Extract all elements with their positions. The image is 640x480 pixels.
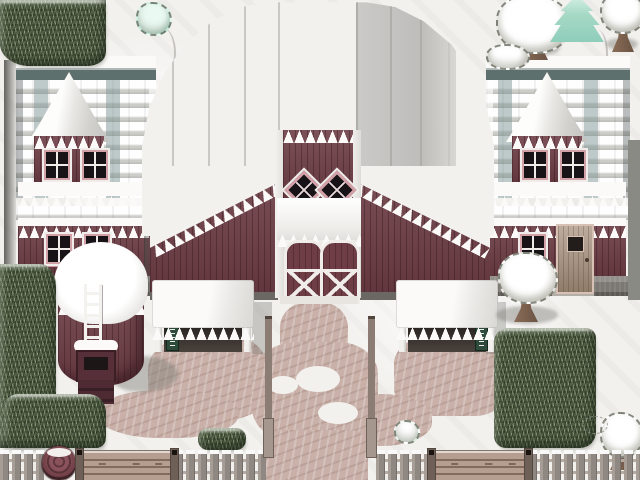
picket-fence (376, 450, 430, 480)
left-edge-shade (4, 60, 16, 272)
gate-post (427, 448, 436, 480)
barn-door-left[interactable] (284, 240, 324, 304)
snow-awning (277, 198, 361, 240)
snow-sprig (582, 416, 608, 434)
icicle-fringe (152, 327, 254, 340)
door-window (567, 236, 584, 252)
left-dormer-window (44, 150, 70, 180)
left-dormer-window (82, 150, 108, 180)
gate-planks (80, 454, 174, 478)
hedge-bottom-left (4, 394, 106, 448)
hinge-bracket (429, 450, 434, 455)
dirt-path-bottom (264, 430, 368, 480)
door-knob (585, 258, 589, 262)
stall-roof-right (396, 280, 498, 328)
barrel-snow (47, 448, 71, 457)
gate-right[interactable] (428, 450, 532, 480)
stall-roof-left (152, 280, 254, 328)
left-wing-snow-ledge (18, 182, 152, 196)
roof-edge-shade (16, 80, 23, 198)
game-viewport (0, 0, 640, 480)
gatepost-right (366, 316, 377, 458)
post-board (263, 418, 274, 458)
gate-post (170, 448, 179, 480)
hinge-bracket (172, 450, 177, 455)
barn-door-right[interactable] (320, 240, 360, 304)
barn-wall-left (150, 166, 278, 296)
picket-fence (528, 450, 640, 480)
right-wing-snow-ledge (488, 182, 626, 196)
icicle-fringe (512, 136, 582, 149)
snow-patch (296, 366, 340, 392)
icicle-fringe (34, 136, 104, 149)
picket-fence (174, 450, 266, 480)
gate-post (75, 448, 84, 480)
hinge-bracket (526, 450, 531, 455)
snow-sprout (394, 420, 420, 444)
left-wing-ridge (16, 68, 156, 80)
barrel[interactable] (42, 446, 76, 480)
hinge-bracket (77, 450, 82, 455)
bush-small (198, 428, 246, 450)
side-door[interactable] (556, 224, 594, 294)
snow-patch (318, 402, 358, 424)
right-dormer-window (560, 150, 586, 180)
right-edge-shade (628, 140, 640, 300)
post-shaft (265, 316, 272, 425)
hedge-top-left (0, 0, 106, 66)
wall-snow (358, 166, 490, 296)
post-board (366, 418, 377, 458)
gate-post (524, 448, 533, 480)
gate-left[interactable] (76, 450, 178, 480)
door-sill (280, 296, 358, 304)
picket-fence (0, 450, 44, 480)
icicle-fringe (396, 327, 498, 340)
post-shaft (368, 316, 375, 425)
barn-wall-right (358, 166, 490, 296)
chute-opening (84, 357, 108, 370)
hedge-right (494, 328, 596, 448)
snow-tree-yard (498, 252, 558, 304)
icicle-fringe (283, 130, 353, 144)
wall-snow (150, 166, 278, 296)
snow-strip (18, 218, 152, 226)
frosted-sapling (136, 2, 172, 36)
right-dormer-window (522, 150, 548, 180)
gate-planks (432, 454, 528, 478)
gatepost-left (263, 316, 274, 458)
snow-bush (486, 44, 530, 70)
